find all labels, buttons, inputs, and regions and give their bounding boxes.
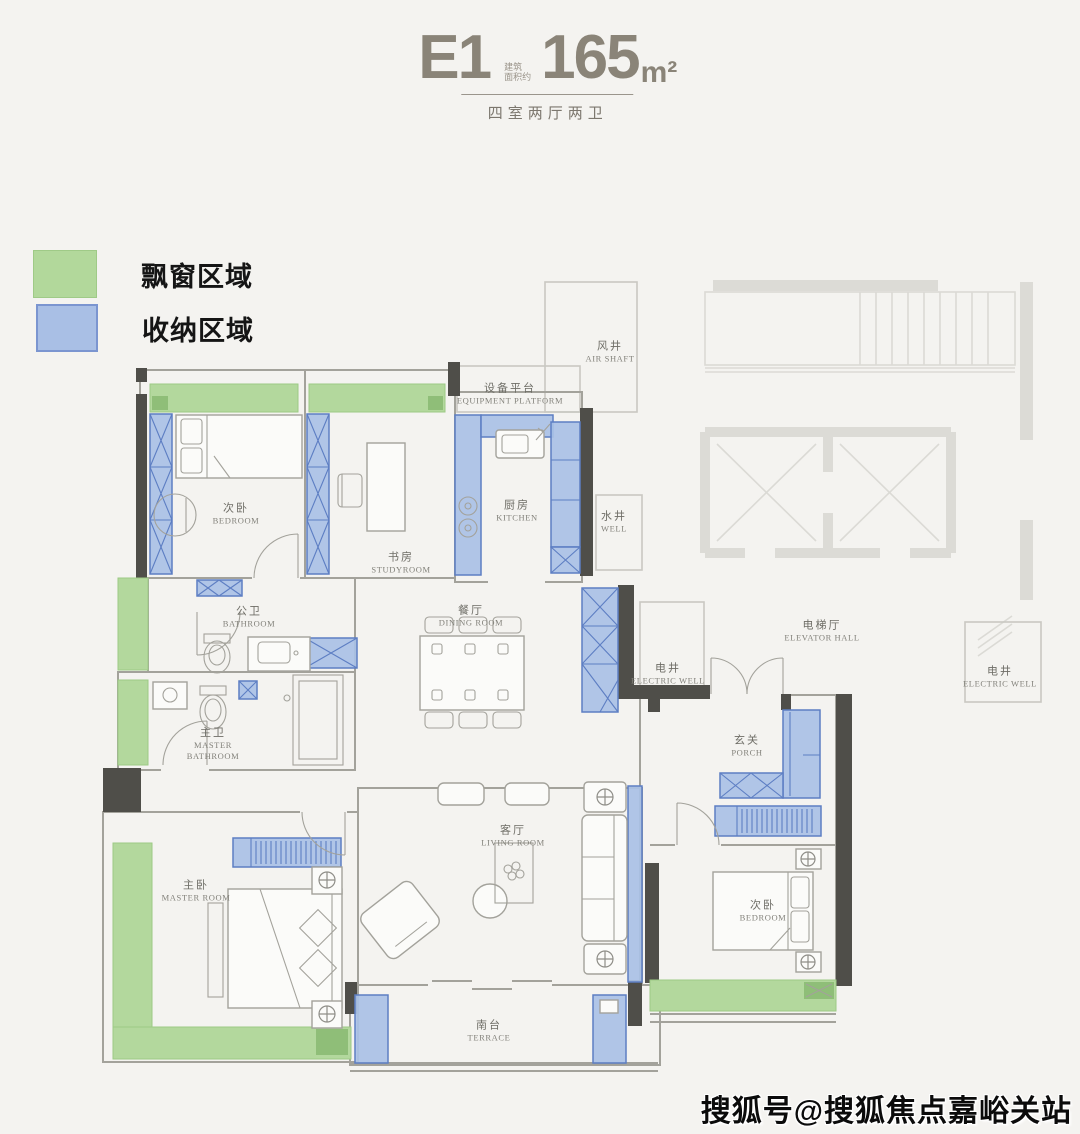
- floor-plan-svg: [0, 0, 1080, 1134]
- room-label-elevator-hall: 电梯厅 ELEVATOR HALL: [784, 618, 859, 643]
- room-label-air-shaft: 风井 AIR SHAFT: [585, 339, 634, 364]
- room-label-dining-room: 餐厅 DINING ROOM: [439, 603, 503, 628]
- public-core: [705, 280, 1033, 656]
- room-label-terrace: 南台 TERRACE: [468, 1018, 511, 1043]
- room-label-equipment-platform: 设备平台 EQUIPMENT PLATFORM: [457, 381, 563, 406]
- room-label-well: 水井 WELL: [601, 509, 627, 534]
- room-label-studyroom: 书房 STUDYROOM: [371, 550, 430, 575]
- watermark: 搜狐号@搜狐焦点嘉峪关站: [701, 1086, 1072, 1130]
- room-label-porch: 玄关 PORCH: [731, 733, 762, 758]
- room-label-bathroom: 公卫 BATHROOM: [223, 604, 276, 629]
- room-label-master-bathroom: 主卫 MASTER BATHROOM: [173, 726, 253, 762]
- floorplan-page: E1 建筑 面积约 165 m² 四室两厅两卫 飘窗区域 收纳区域: [0, 0, 1080, 1134]
- room-label-kitchen: 厨房 KITCHEN: [496, 498, 538, 523]
- room-label-electric-well-right: 电井 ELECTRIC WELL: [960, 664, 1040, 689]
- room-label-living-room: 客厅 LIVING ROOM: [481, 823, 545, 848]
- room-label-electric-well-left: 电井 ELECTRIC WELL: [628, 661, 708, 686]
- floor-plan: 次卧 BEDROOM 书房 STUDYROOM 厨房 KITCHEN 设备平台 …: [0, 0, 1080, 1134]
- room-label-bedroom-right: 次卧 BEDROOM: [740, 898, 787, 923]
- room-label-bedroom-top: 次卧 BEDROOM: [213, 501, 260, 526]
- room-label-master-room: 主卧 MASTER ROOM: [162, 878, 231, 903]
